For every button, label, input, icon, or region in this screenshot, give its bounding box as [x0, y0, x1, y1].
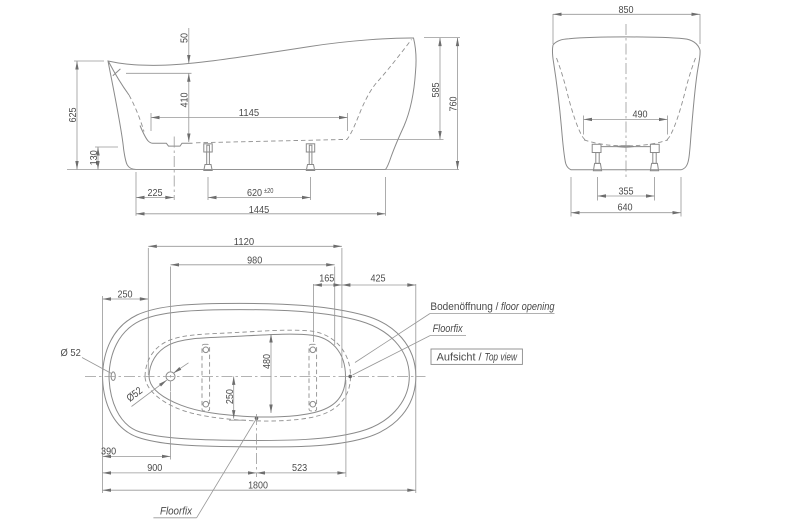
svg-text:250: 250	[117, 289, 132, 301]
svg-text:1800: 1800	[248, 479, 268, 491]
svg-text:410: 410	[179, 92, 191, 107]
svg-text:Ø52: Ø52	[124, 385, 145, 405]
svg-text:Top view: Top view	[485, 351, 518, 363]
svg-text:640: 640	[617, 202, 632, 214]
svg-text:1445: 1445	[249, 204, 270, 216]
svg-text:480: 480	[261, 354, 273, 369]
svg-text:850: 850	[618, 4, 633, 16]
svg-text:625: 625	[67, 107, 79, 122]
svg-text:Floorfix: Floorfix	[433, 323, 463, 335]
svg-text:760: 760	[447, 96, 459, 111]
svg-text:Floorfix: Floorfix	[160, 505, 192, 517]
svg-text:900: 900	[147, 462, 162, 474]
svg-text:585: 585	[430, 82, 442, 97]
svg-text:523: 523	[292, 462, 307, 474]
svg-text:floor opening: floor opening	[501, 301, 555, 313]
svg-text:250: 250	[224, 389, 236, 404]
svg-text:1120: 1120	[234, 236, 255, 248]
svg-text:980: 980	[247, 254, 262, 266]
svg-text:Aufsicht /: Aufsicht /	[437, 351, 483, 363]
svg-text:165: 165	[319, 273, 334, 285]
svg-text:425: 425	[370, 273, 385, 285]
svg-text:50: 50	[179, 33, 191, 43]
svg-text:390: 390	[101, 445, 116, 457]
svg-text:1145: 1145	[239, 107, 260, 119]
svg-text:130: 130	[88, 150, 100, 165]
svg-text:±20: ±20	[264, 188, 274, 195]
svg-text:225: 225	[147, 187, 162, 199]
svg-text:620: 620	[247, 187, 262, 199]
svg-text:355: 355	[618, 186, 633, 198]
svg-text:490: 490	[632, 108, 647, 120]
svg-text:Ø 52: Ø 52	[61, 347, 81, 359]
svg-text:Bodenöffnung /: Bodenöffnung /	[430, 301, 499, 313]
